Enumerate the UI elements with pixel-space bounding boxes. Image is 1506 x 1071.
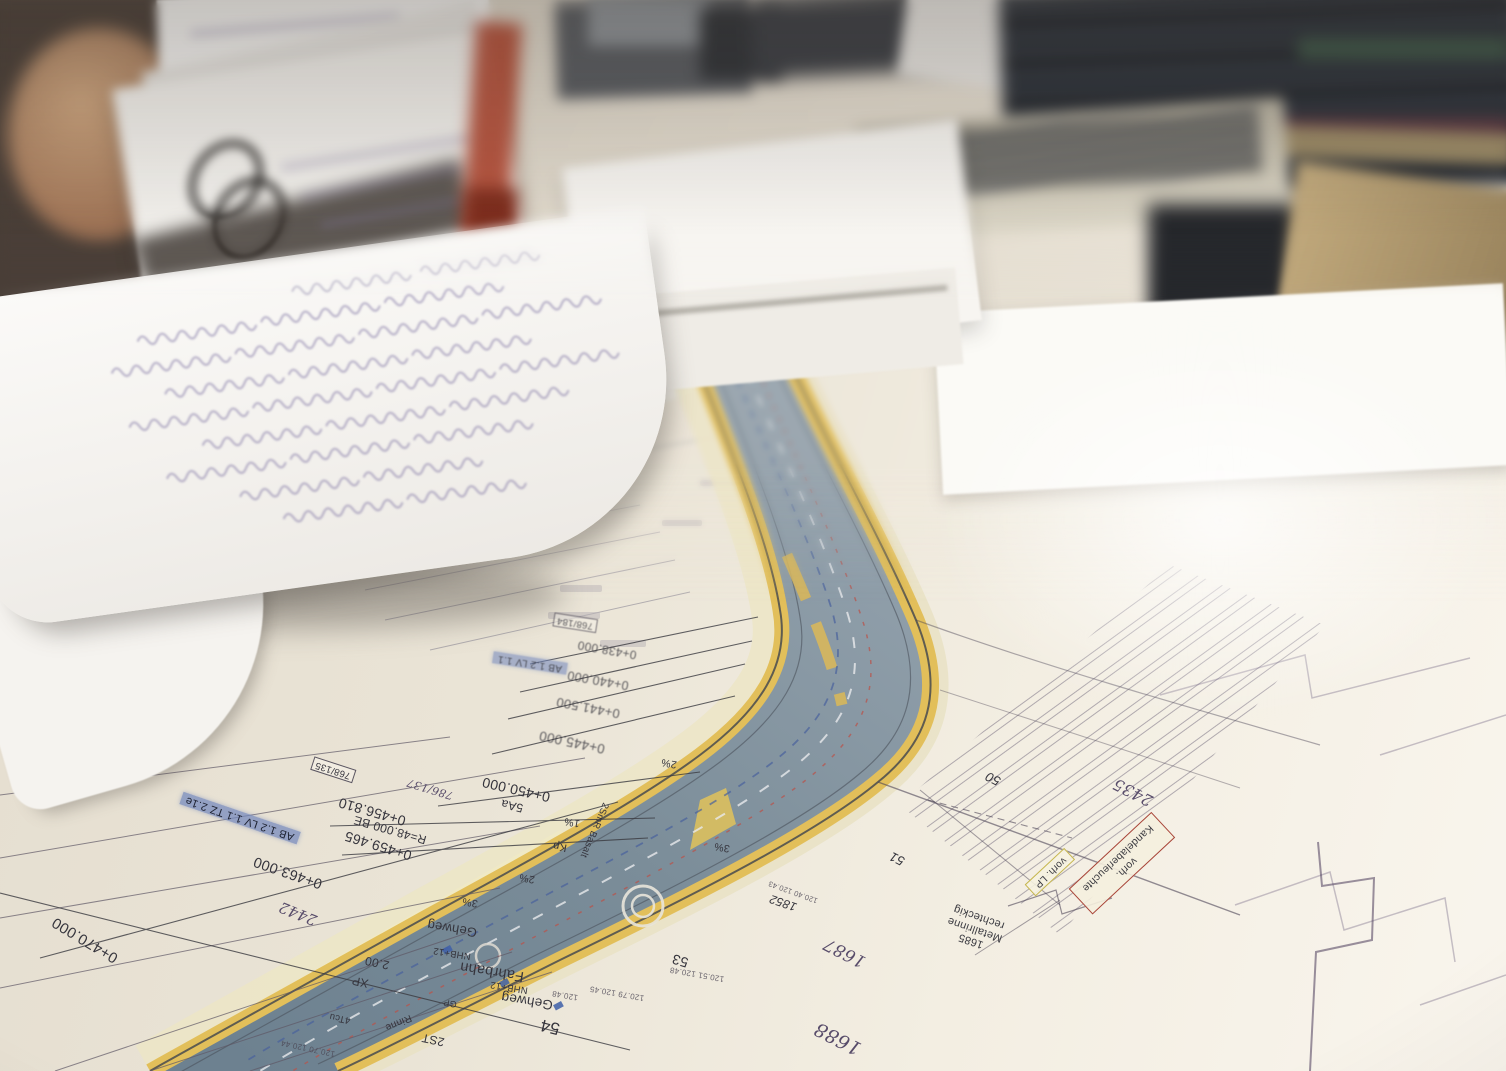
grade-label: 3% (461, 895, 478, 908)
desk-photo: 0+438.000 0+440.000 0+441.500 0+445.000 … (0, 0, 1506, 1071)
mark-label: GP (443, 997, 458, 1008)
hole-punch-top (588, 0, 710, 46)
grade-label: 1% (563, 815, 580, 828)
mark-label: XP (351, 974, 370, 989)
grade-label: 2% (660, 756, 677, 769)
grade-label: 3% (713, 840, 730, 853)
grade-label: 2% (518, 871, 535, 884)
overexposed-sheet (934, 283, 1506, 495)
mark-label: Kp (552, 839, 568, 852)
point-number: 54 (538, 1016, 561, 1037)
file-stack-green (1298, 38, 1506, 59)
